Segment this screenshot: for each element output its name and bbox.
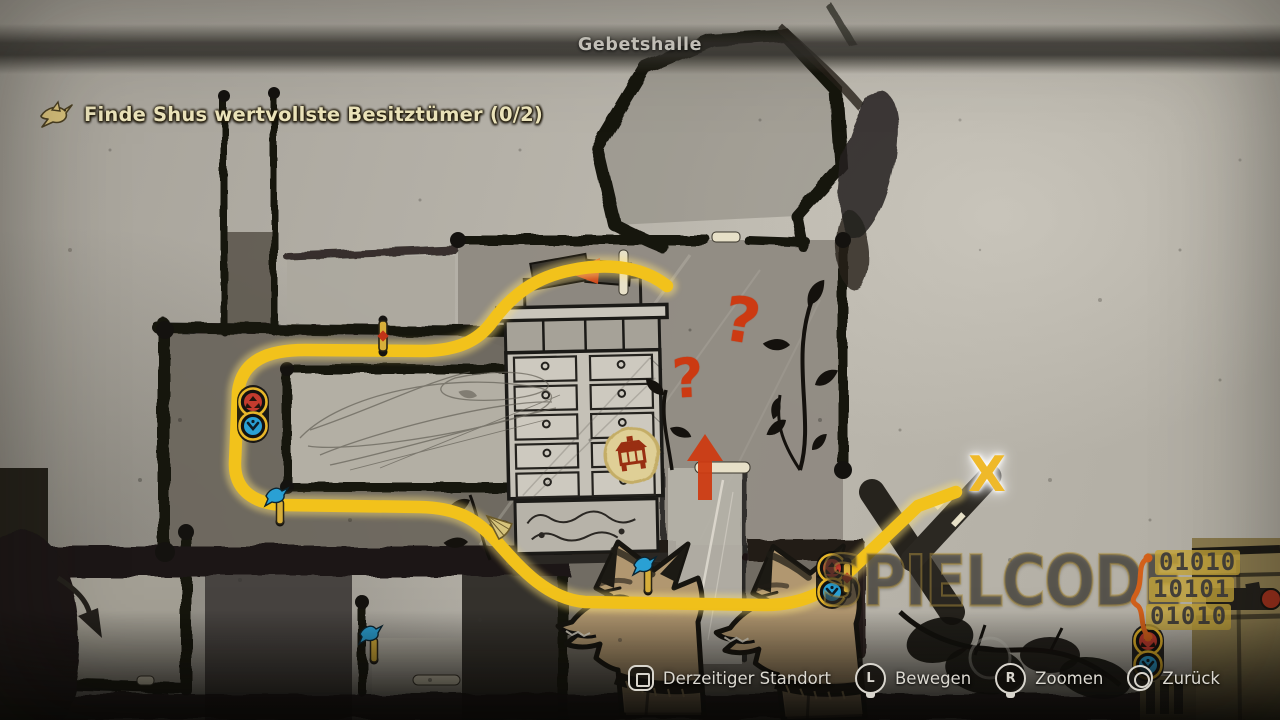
l-stick-icon: L xyxy=(855,663,886,694)
hint-move[interactable]: L Bewegen xyxy=(855,663,971,694)
square-button-icon xyxy=(628,665,654,691)
question-mark-2: ? xyxy=(671,351,705,407)
location-title-band: Gebetshalle xyxy=(0,24,1280,74)
r-stick-icon: R xyxy=(995,663,1026,694)
twin-marker-pair-left xyxy=(237,385,269,443)
location-title: Gebetshalle xyxy=(0,35,1280,55)
hint-current-location[interactable]: Derzeitiger Standort xyxy=(628,665,831,691)
door-marker-red-2 xyxy=(841,558,852,599)
door-marker-red-1 xyxy=(377,316,388,357)
hint-zoom[interactable]: R Zoomen xyxy=(995,663,1103,694)
hint-label: Derzeitiger Standort xyxy=(663,669,831,688)
control-hints-bar: Derzeitiger Standort L Bewegen R Zoomen … xyxy=(628,662,1220,694)
bird-icon xyxy=(36,99,74,129)
destination-x-marker: X xyxy=(958,448,1016,502)
quest-objective: Finde Shus wertvollste Besitztümer (0/2) xyxy=(36,99,543,129)
circle-button-icon xyxy=(1127,665,1153,691)
quest-objective-text: Finde Shus wertvollste Besitztümer (0/2) xyxy=(84,103,543,126)
l-stick-letter: L xyxy=(866,671,874,686)
hint-label: Zoomen xyxy=(1035,669,1103,688)
r-stick-letter: R xyxy=(1006,671,1016,686)
hint-back[interactable]: Zurück xyxy=(1127,665,1220,691)
hint-label: Bewegen xyxy=(895,669,971,688)
hint-label: Zurück xyxy=(1162,669,1220,688)
